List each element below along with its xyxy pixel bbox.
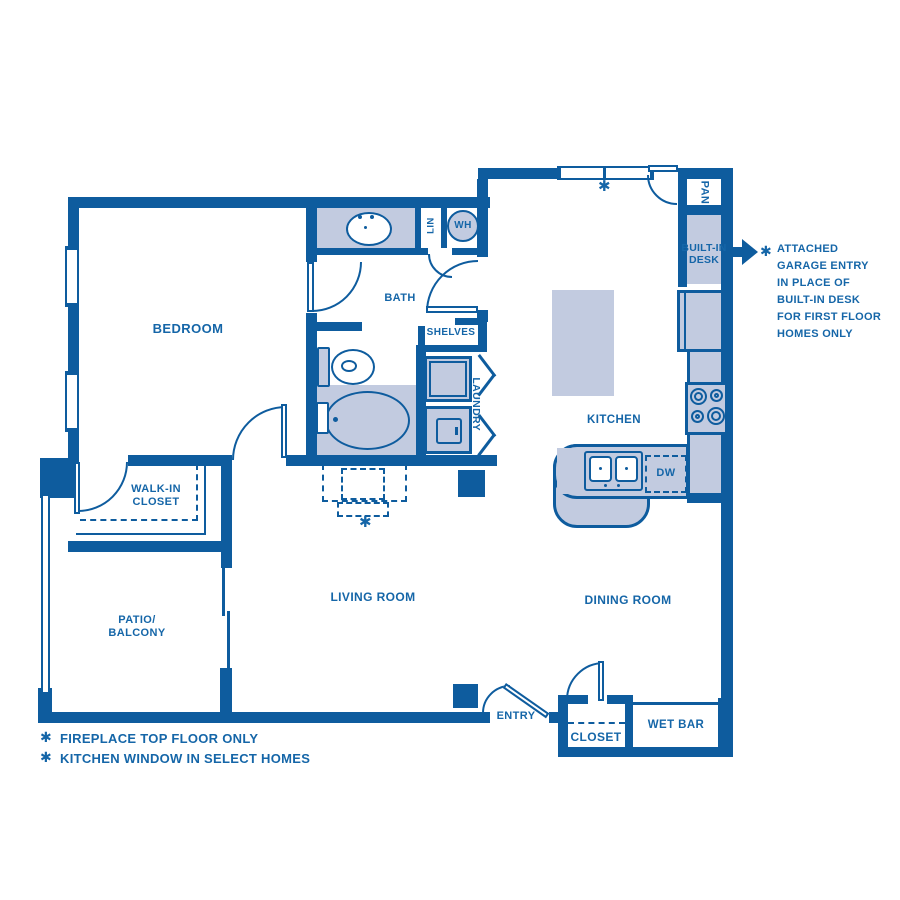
garage-entry-annotation: ATTACHED GARAGE ENTRY IN PLACE OF BUILT-…: [777, 241, 881, 343]
fixture-label-linen: LIN: [425, 206, 436, 246]
window: [65, 246, 79, 307]
door-leaf: [426, 306, 478, 313]
floor-plan: ✱ ✱ ✱ ✱ ✱ BEDROOM BATH KITCHEN LIVING RO…: [0, 0, 900, 900]
stove-burner: [691, 410, 704, 423]
closet-rod-line: [76, 533, 206, 535]
fireplace-firebox: [341, 468, 385, 500]
fixture-label-water-heater: WH: [448, 220, 478, 232]
closet-shelf-dashed: [80, 519, 198, 521]
wall: [68, 541, 232, 552]
window: [65, 371, 79, 432]
bath-sink: [346, 212, 392, 246]
door-arc: [428, 254, 452, 278]
drain-dot: [364, 226, 367, 229]
patio-railing: [41, 496, 50, 692]
sliding-door-panel: [222, 566, 225, 616]
toilet-tank: [317, 347, 330, 387]
patio-column: [40, 458, 78, 498]
closet-shelf-dashed: [568, 722, 625, 724]
wall: [418, 345, 487, 352]
fixture-label-built-in-desk: BUILT-INDESK: [674, 242, 734, 267]
wall: [558, 747, 733, 757]
annotation-line: GARAGE ENTRY: [777, 258, 881, 275]
room-label-bath: BATH: [360, 292, 440, 305]
annotation-line: ATTACHED: [777, 241, 881, 258]
wall: [313, 322, 362, 331]
annotation-line: BUILT-IN DESK: [777, 292, 881, 309]
door-leaf: [281, 404, 287, 458]
dryer-door: [436, 418, 462, 444]
annotation-line: IN PLACE OF: [777, 275, 881, 292]
door-arc: [647, 175, 677, 205]
fixture-label-laundry: LAUNDRY: [470, 374, 482, 434]
room-label-entry: ENTRY: [486, 710, 546, 723]
stove-burner: [707, 407, 725, 425]
closet-rod-line: [128, 461, 206, 463]
annotation-line: HOMES ONLY: [777, 326, 881, 343]
wall: [312, 248, 428, 255]
faucet-dot: [617, 484, 620, 487]
washer-lid: [429, 361, 467, 397]
structural-column: [458, 470, 485, 497]
room-label-patio-balcony: PATIO/BALCONY: [87, 614, 187, 640]
room-label-bedroom: BEDROOM: [118, 321, 258, 336]
dryer-handle: [455, 427, 458, 435]
room-label-dining-room: DINING ROOM: [558, 593, 698, 607]
sink-drain: [599, 467, 602, 470]
bifold-door: [478, 433, 496, 456]
door-arc: [232, 406, 286, 460]
toilet-bowl-inner: [341, 360, 357, 372]
room-label-closet: CLOSET: [561, 730, 631, 744]
star-icon: ✱: [760, 243, 772, 260]
door-leaf: [648, 165, 678, 172]
tub-faucet: [316, 402, 329, 434]
fixture-label-pantry: PAN: [698, 172, 711, 212]
entry-column: [453, 684, 478, 708]
star-icon: ✱: [359, 513, 372, 531]
annotation-line: FOR FIRST FLOOR: [777, 309, 881, 326]
refrigerator-divider: [684, 293, 686, 349]
sink-drain: [625, 467, 628, 470]
wall: [678, 172, 687, 287]
wall: [415, 208, 421, 248]
tub-drain: [333, 417, 338, 422]
door-leaf: [307, 262, 314, 312]
wall: [38, 712, 490, 723]
faucet-dot: [604, 484, 607, 487]
door-arc: [312, 262, 362, 312]
arrow-head-icon: [742, 239, 758, 265]
wall: [220, 668, 232, 716]
star-icon: ✱: [598, 177, 611, 195]
room-label-living-room: LIVING ROOM: [303, 590, 443, 604]
wall: [687, 493, 733, 503]
door-leaf: [74, 462, 80, 514]
kitchen-island: [552, 290, 614, 396]
wet-bar-counter-edge: [633, 702, 718, 705]
wall: [477, 179, 488, 257]
star-icon: ✱: [40, 729, 52, 746]
door-leaf: [598, 661, 604, 701]
footnote-fireplace: FIREPLACE TOP FLOOR ONLY: [60, 731, 258, 746]
sliding-door-panel: [227, 611, 230, 668]
wall: [441, 208, 447, 248]
wall: [306, 313, 317, 455]
stove-burner: [710, 389, 723, 402]
room-label-walk-in-closet: WALK-INCLOSET: [106, 483, 206, 509]
footnote-kitchen-window: KITCHEN WINDOW IN SELECT HOMES: [60, 751, 310, 766]
room-label-kitchen: KITCHEN: [564, 414, 664, 428]
faucet-dot: [358, 215, 362, 219]
fixture-label-dishwasher: DW: [646, 467, 686, 480]
star-icon: ✱: [40, 749, 52, 766]
fixture-label-shelves: SHELVES: [416, 327, 486, 339]
stove-burner: [690, 388, 707, 405]
faucet-dot: [370, 215, 374, 219]
room-label-wet-bar: WET BAR: [631, 719, 721, 733]
